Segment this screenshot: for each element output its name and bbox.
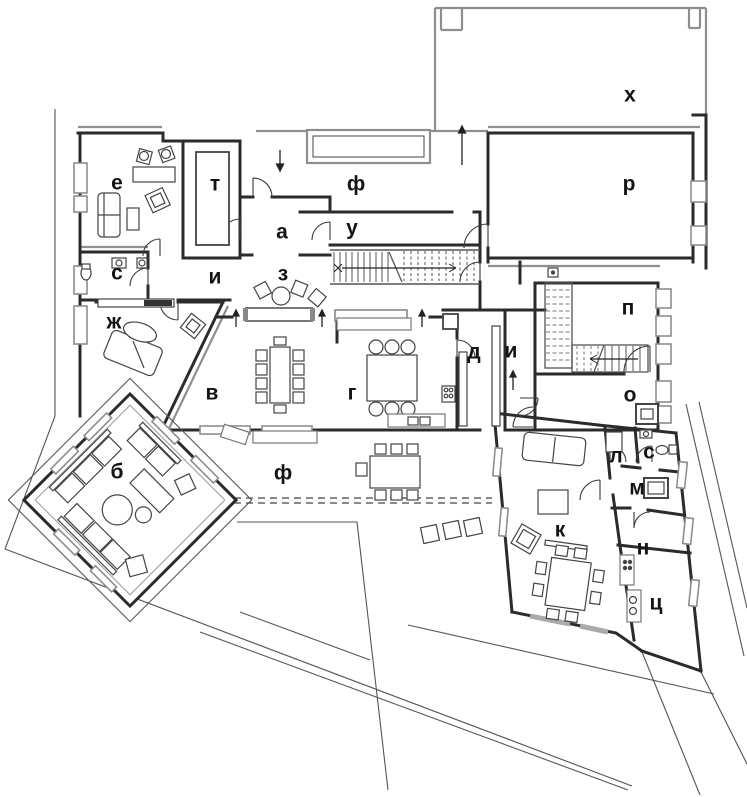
- room-label-f-terrace-top: ф: [347, 174, 365, 195]
- room-label-a: а: [276, 222, 288, 243]
- room-label-z: з: [278, 264, 288, 285]
- room-label-r: р: [623, 174, 636, 195]
- room-label-e: е: [111, 173, 123, 194]
- main-staircase: [330, 250, 480, 284]
- room-label-f-terrace-bottom: ф: [274, 463, 292, 484]
- room-label-v: в: [206, 383, 219, 404]
- room-label-ts: ц: [650, 593, 663, 614]
- room-label-n: н: [637, 538, 650, 559]
- room-label-s2-bath: с: [643, 442, 655, 463]
- room-label-o: о: [624, 385, 637, 406]
- room-label-h: х: [624, 85, 636, 106]
- room-label-i-corridor: и: [209, 267, 222, 288]
- room-label-m: м: [629, 478, 645, 499]
- room-label-u: у: [346, 218, 358, 239]
- room-label-b: б: [111, 462, 124, 483]
- room-label-g: г: [348, 383, 357, 404]
- room-label-i2-corridor: и: [505, 341, 518, 362]
- room-label-t: т: [210, 174, 220, 195]
- room-label-k: к: [555, 520, 566, 541]
- room-label-zh: ж: [107, 312, 122, 333]
- lounge-wing: [8, 378, 251, 621]
- terrace-dashed-edge: [222, 498, 492, 503]
- room-label-s-wc: с: [111, 263, 123, 284]
- floor-plan-canvas: е т ф а у х р с и з п ж в г д и о б ф к …: [0, 0, 747, 797]
- room-label-l: л: [609, 446, 622, 467]
- room-label-d: д: [467, 342, 480, 363]
- room-label-p: п: [622, 298, 635, 319]
